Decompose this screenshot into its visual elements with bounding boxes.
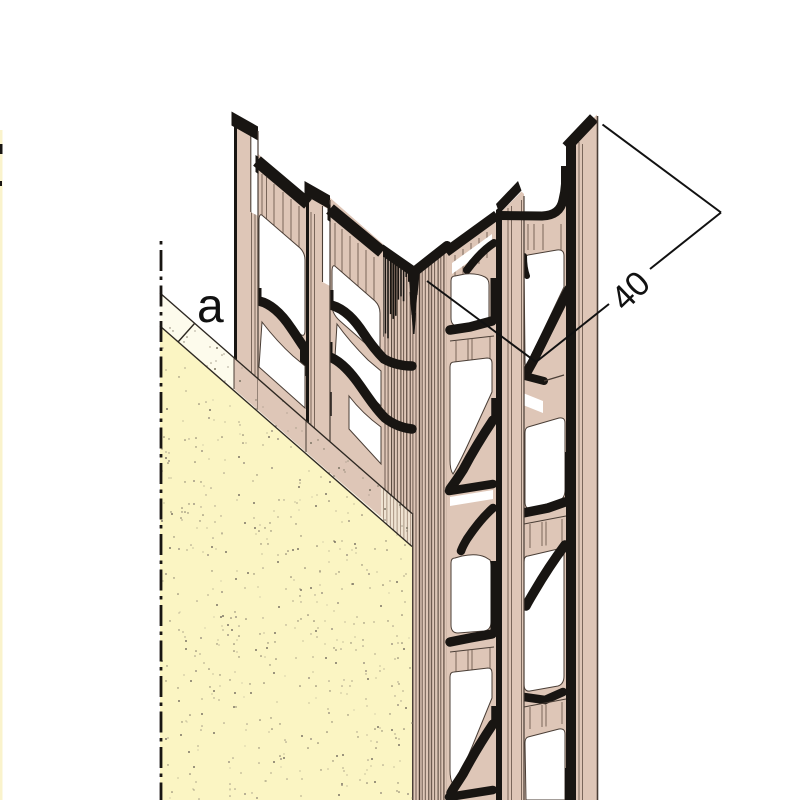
svg-text:a: a: [197, 280, 224, 333]
